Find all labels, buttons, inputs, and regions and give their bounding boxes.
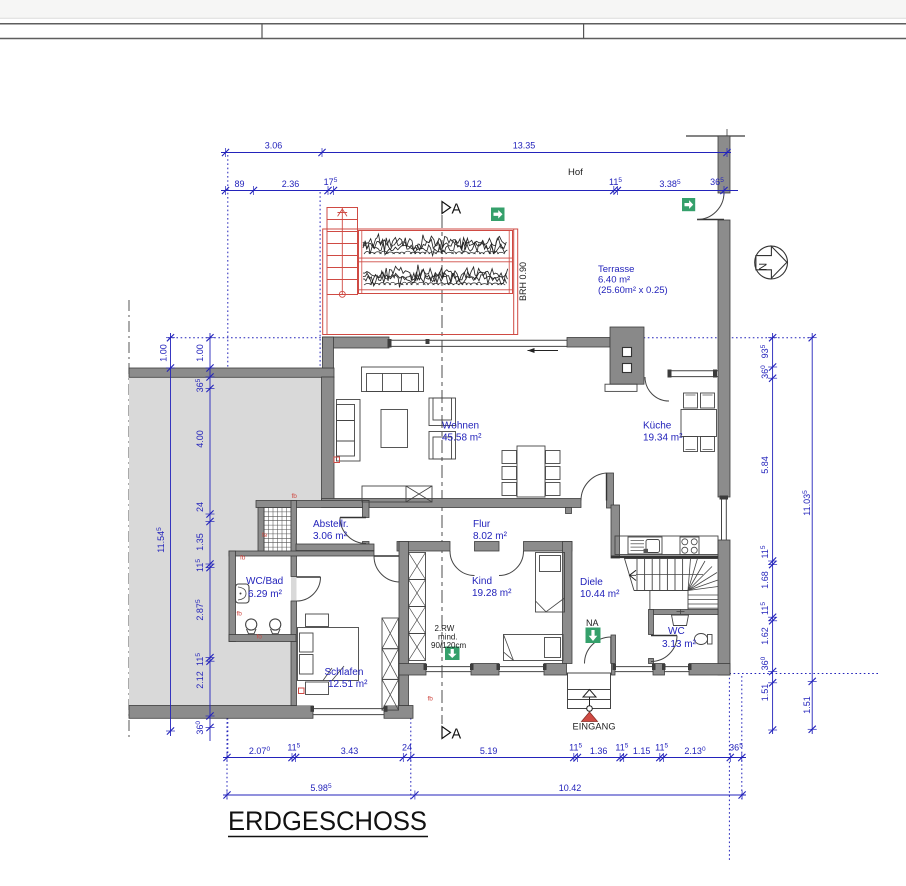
svg-text:1.36: 1.36 xyxy=(590,746,608,756)
svg-text:1.00: 1.00 xyxy=(195,344,205,362)
svg-text:WC/Bad: WC/Bad xyxy=(246,576,283,587)
svg-text:10.42: 10.42 xyxy=(559,783,582,793)
svg-text:N: N xyxy=(758,263,770,271)
svg-text:NA: NA xyxy=(586,618,599,628)
svg-text:5.19: 5.19 xyxy=(480,746,498,756)
svg-text:fb: fb xyxy=(292,493,298,500)
svg-text:4.00: 4.00 xyxy=(195,430,205,448)
svg-text:Diele: Diele xyxy=(580,577,603,588)
svg-text:ERDGESCHOSS: ERDGESCHOSS xyxy=(228,806,427,836)
svg-text:fo: fo xyxy=(257,634,263,641)
svg-text:fb: fb xyxy=(237,611,243,618)
svg-text:90/120cm: 90/120cm xyxy=(431,641,466,650)
svg-text:6.29 m²: 6.29 m² xyxy=(248,589,283,600)
svg-text:3.43: 3.43 xyxy=(341,746,359,756)
svg-text:EINGANG: EINGANG xyxy=(573,722,616,732)
svg-text:1.62: 1.62 xyxy=(760,627,770,645)
svg-text:3.06: 3.06 xyxy=(265,141,283,151)
svg-text:89: 89 xyxy=(234,179,244,189)
svg-text:12.51 m²: 12.51 m² xyxy=(328,679,368,690)
svg-text:1.51: 1.51 xyxy=(802,696,812,714)
svg-text:24: 24 xyxy=(195,502,205,512)
svg-text:fb: fb xyxy=(428,696,434,703)
svg-text:Abstellr.: Abstellr. xyxy=(313,519,349,530)
svg-text:2.36: 2.36 xyxy=(282,179,300,189)
svg-text:24: 24 xyxy=(402,743,412,753)
svg-text:3.13 m²: 3.13 m² xyxy=(662,639,697,650)
svg-text:6.40 m²: 6.40 m² xyxy=(598,275,630,286)
svg-text:Terrasse: Terrasse xyxy=(598,264,634,275)
svg-text:1.68: 1.68 xyxy=(760,571,770,589)
svg-text:Kind: Kind xyxy=(472,576,492,587)
svg-text:10.44 m²: 10.44 m² xyxy=(580,589,620,600)
svg-text:fb: fb xyxy=(240,555,246,562)
svg-text:1.00: 1.00 xyxy=(159,344,169,362)
svg-text:Schlafen: Schlafen xyxy=(325,667,364,678)
svg-text:2.12: 2.12 xyxy=(195,671,205,689)
svg-text:9.12: 9.12 xyxy=(464,179,482,189)
svg-text:Wohnen: Wohnen xyxy=(442,421,479,432)
svg-text:Küche: Küche xyxy=(643,421,672,432)
svg-text:1.15: 1.15 xyxy=(633,746,651,756)
svg-text:1.51: 1.51 xyxy=(760,684,770,702)
svg-text:5.84: 5.84 xyxy=(760,456,770,474)
svg-text:Flur: Flur xyxy=(473,519,491,530)
svg-text:8.02 m²: 8.02 m² xyxy=(473,531,508,542)
svg-text:A: A xyxy=(452,727,462,743)
svg-text:A: A xyxy=(452,202,462,218)
svg-text:13.35: 13.35 xyxy=(513,141,536,151)
svg-text:1.35: 1.35 xyxy=(195,533,205,551)
svg-text:WC: WC xyxy=(668,626,685,637)
svg-text:19.34 m²: 19.34 m² xyxy=(643,433,683,444)
svg-text:Hof: Hof xyxy=(568,167,583,178)
svg-text:fe: fe xyxy=(262,532,268,539)
svg-text:(25.60m² x 0.25): (25.60m² x 0.25) xyxy=(598,285,668,296)
svg-text:19.28 m²: 19.28 m² xyxy=(472,588,512,599)
svg-text:BRH 0.90: BRH 0.90 xyxy=(518,262,528,301)
svg-text:3.06 m²: 3.06 m² xyxy=(313,531,348,542)
svg-text:45.58 m²: 45.58 m² xyxy=(442,433,482,444)
